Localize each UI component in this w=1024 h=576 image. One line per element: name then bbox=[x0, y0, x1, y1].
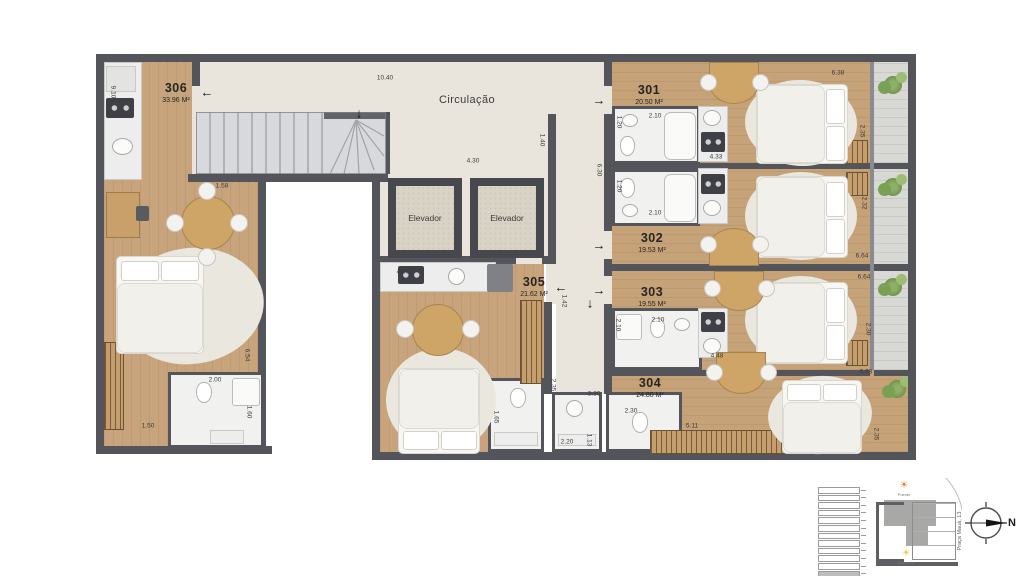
dimension-label: 6.64 bbox=[858, 274, 871, 281]
bed-304 bbox=[782, 380, 862, 454]
dimension-label: 4.28 bbox=[710, 177, 723, 184]
dimension-label: 1.20 bbox=[616, 180, 623, 193]
dimension-label: 2.30 bbox=[865, 323, 872, 336]
section-floor-row bbox=[818, 571, 860, 576]
section-floor-row bbox=[818, 510, 860, 517]
sunset-sun-icon: ☀ bbox=[900, 481, 909, 491]
dimension-label: 6.54 bbox=[244, 349, 251, 362]
elevator-cab-1: Elevador bbox=[396, 186, 454, 250]
dining-table-303 bbox=[714, 271, 764, 311]
section-floor-row bbox=[818, 525, 860, 532]
toilet-304 bbox=[632, 412, 648, 433]
keyplan-rooms-grid bbox=[912, 502, 956, 560]
dimension-label: 4.48 bbox=[711, 353, 724, 360]
dimension-label: 9.10 bbox=[110, 86, 117, 99]
pillow bbox=[403, 431, 439, 450]
direction-arrow: ↓ bbox=[587, 296, 594, 311]
wardrobe-305 bbox=[520, 300, 542, 384]
duvet bbox=[783, 402, 861, 453]
wall-right bbox=[908, 54, 916, 460]
chair bbox=[700, 74, 717, 91]
section-floor-row bbox=[818, 555, 860, 562]
cooktop-306 bbox=[106, 98, 134, 118]
balcony-divider-3 bbox=[874, 370, 908, 376]
pillow bbox=[826, 325, 845, 360]
plant-icon bbox=[884, 278, 902, 296]
kitchen-sink-301 bbox=[703, 110, 721, 126]
wardrobe-303 bbox=[846, 340, 868, 366]
dimension-label: 3.30 bbox=[588, 391, 601, 398]
chair bbox=[700, 236, 717, 253]
dimension-label: 10.40 bbox=[377, 75, 393, 82]
keyplan-bottom-wall bbox=[876, 562, 958, 566]
pillow bbox=[826, 182, 845, 217]
toilet-306 bbox=[196, 382, 212, 403]
pillow bbox=[826, 219, 845, 254]
dimension-label: 1.42 bbox=[561, 295, 568, 308]
sink-counter-306 bbox=[210, 430, 244, 444]
north-label: N bbox=[1008, 517, 1016, 529]
dimension-label: 2.35 bbox=[550, 379, 557, 392]
dimension-label: 4.30 bbox=[467, 158, 480, 165]
dimension-label: 2.32 bbox=[861, 197, 868, 210]
chair bbox=[752, 236, 769, 253]
section-floor-row bbox=[818, 502, 860, 509]
chair bbox=[166, 214, 184, 232]
dimension-label: 2.10 bbox=[652, 317, 665, 324]
unit-area: 19.53 M² bbox=[638, 247, 666, 255]
dimension-label: 6.64 bbox=[856, 253, 869, 260]
chair bbox=[198, 182, 216, 200]
sink-301 bbox=[622, 114, 638, 127]
pillow bbox=[826, 89, 845, 124]
dimension-label: 6.30 bbox=[596, 164, 603, 177]
chair bbox=[760, 364, 777, 381]
wall-lobby-right bbox=[548, 114, 556, 264]
pillow bbox=[823, 384, 857, 401]
dimension-label: 4.33 bbox=[710, 154, 723, 161]
bathtub-301 bbox=[664, 112, 696, 160]
plant-icon bbox=[884, 178, 902, 196]
dimension-label: 2.10 bbox=[649, 210, 662, 217]
wall-stairs-bottom bbox=[188, 174, 388, 182]
bed-306 bbox=[116, 256, 204, 354]
unit-number: 301 bbox=[635, 84, 663, 98]
dimension-label: 1.65 bbox=[493, 411, 500, 424]
bed-305 bbox=[398, 368, 480, 454]
cooktop-301 bbox=[701, 132, 725, 152]
unit-area: 24.80 M² bbox=[636, 392, 664, 400]
chair bbox=[706, 364, 723, 381]
shower-306 bbox=[232, 378, 260, 406]
balcony-divider-2 bbox=[874, 264, 908, 271]
wardrobe-304 bbox=[650, 430, 790, 454]
unit-306-label: 30633.96 M² bbox=[162, 82, 190, 104]
sunrise-label: Nascente bbox=[898, 560, 915, 565]
pillow bbox=[441, 431, 477, 450]
direction-arrow: ← bbox=[555, 280, 568, 295]
section-floor-row bbox=[818, 533, 860, 540]
unit-area: 19.55 M² bbox=[638, 301, 666, 309]
plant-icon bbox=[884, 76, 902, 94]
desk-chair-306 bbox=[136, 206, 149, 221]
elevator-cab-2: Elevador bbox=[478, 186, 536, 250]
dimension-label: 1.58 bbox=[216, 183, 229, 190]
wall-305-left bbox=[372, 174, 380, 458]
bed-301 bbox=[756, 84, 848, 164]
staircase bbox=[196, 112, 386, 174]
section-floor-row bbox=[818, 548, 860, 555]
unit-302-label: 30219.53 M² bbox=[638, 232, 666, 254]
chair bbox=[396, 320, 414, 338]
direction-arrow: ↓ bbox=[356, 106, 363, 121]
duvet bbox=[757, 85, 825, 163]
plant-icon bbox=[888, 380, 906, 398]
desk-306 bbox=[106, 192, 140, 238]
dining-table-305 bbox=[412, 304, 464, 356]
duvet bbox=[117, 283, 203, 353]
kitchen-sink-306 bbox=[112, 138, 133, 155]
bathtub-302 bbox=[664, 174, 696, 222]
section-floor-row bbox=[818, 517, 860, 524]
washer-305b bbox=[566, 400, 583, 417]
dimension-label: 2.35 bbox=[873, 428, 880, 441]
unit-area: 20.50 M² bbox=[635, 99, 663, 107]
fridge-305 bbox=[487, 264, 513, 292]
wall-left bbox=[96, 54, 104, 454]
dimension-label: 2.30 bbox=[625, 408, 638, 415]
unit-number: 303 bbox=[638, 286, 666, 300]
elevator-1-label: Elevador bbox=[396, 213, 454, 223]
elevator-shaft-1: Elevador bbox=[388, 178, 462, 258]
sink-counter-305 bbox=[494, 432, 538, 446]
pillow bbox=[826, 126, 845, 161]
unit-area: 33.96 M² bbox=[162, 97, 190, 105]
pillow bbox=[121, 261, 159, 281]
direction-arrow: → bbox=[593, 238, 606, 253]
sunrise-sun-icon: ☀ bbox=[902, 549, 911, 559]
balcony-divider-1 bbox=[874, 163, 908, 169]
direction-arrow: ← bbox=[201, 85, 214, 100]
dimension-label: 1.13 bbox=[586, 434, 593, 447]
section-floor-row bbox=[818, 495, 860, 502]
key-plan: ☀ Poente ☀ Nascente bbox=[866, 478, 962, 576]
dimension-label: 6.38 bbox=[832, 70, 845, 77]
direction-arrow: → bbox=[593, 93, 606, 108]
wall-top bbox=[96, 54, 916, 62]
dimension-label: 1.20 bbox=[616, 116, 623, 129]
section-floor-row bbox=[818, 540, 860, 547]
circulation-label: Circulação bbox=[439, 94, 495, 106]
pillow bbox=[161, 261, 199, 281]
toilet-305 bbox=[510, 388, 526, 408]
chair bbox=[752, 74, 769, 91]
sunset-label: Poente bbox=[898, 492, 911, 497]
unit-number: 306 bbox=[162, 82, 190, 96]
dimension-label: 1.40 bbox=[539, 134, 546, 147]
bed-302 bbox=[756, 176, 848, 258]
unit-304-label: 30424.80 M² bbox=[636, 377, 664, 399]
balcony-strip bbox=[874, 62, 908, 370]
floor-plan-canvas: Elevador Elevador bbox=[0, 0, 1024, 576]
dimension-label: 1.50 bbox=[142, 423, 155, 430]
wardrobe-302 bbox=[846, 172, 868, 196]
keyplan-outline bbox=[876, 502, 904, 562]
chair bbox=[198, 248, 216, 266]
kitchen-sink-302 bbox=[703, 200, 721, 216]
dimension-label: 2.20 bbox=[561, 439, 574, 446]
unit-305-label: 30521.62 M² bbox=[520, 276, 548, 298]
unit-area: 21.62 M² bbox=[520, 291, 548, 299]
dimension-label: 6.93 bbox=[860, 369, 873, 376]
dimension-label: 2.10 bbox=[615, 319, 622, 332]
dimension-label: 2.00 bbox=[209, 377, 222, 384]
unit-number: 305 bbox=[520, 276, 548, 290]
wall-306-door-stub bbox=[192, 62, 200, 86]
dimension-label: 5.11 bbox=[686, 423, 698, 430]
section-floor-row bbox=[818, 487, 860, 494]
wardrobe-306 bbox=[104, 342, 124, 430]
dimension-label: 4.00 bbox=[397, 269, 410, 276]
pillow bbox=[826, 288, 845, 323]
section-floor-row bbox=[818, 563, 860, 570]
unit-number: 304 bbox=[636, 377, 664, 391]
unit-301-label: 30120.50 M² bbox=[635, 84, 663, 106]
pillow bbox=[787, 384, 821, 401]
kitchen-sink-305 bbox=[448, 268, 465, 285]
duvet bbox=[399, 369, 479, 429]
sink-302 bbox=[622, 204, 638, 217]
toilet-301 bbox=[620, 136, 635, 156]
dimension-label: 2.35 bbox=[859, 125, 866, 138]
dining-table-306 bbox=[181, 196, 235, 250]
unit-303-label: 30319.55 M² bbox=[638, 286, 666, 308]
dimension-label: 2.10 bbox=[649, 113, 662, 120]
chair bbox=[462, 320, 480, 338]
chair bbox=[230, 214, 248, 232]
chair bbox=[704, 280, 721, 297]
elevator-2-label: Elevador bbox=[478, 213, 536, 223]
direction-arrow: → bbox=[593, 283, 606, 298]
chair bbox=[758, 280, 775, 297]
unit-number: 302 bbox=[638, 232, 666, 246]
sink-303 bbox=[674, 318, 690, 331]
cooktop-303 bbox=[701, 312, 725, 332]
dimension-label: 1.60 bbox=[246, 406, 253, 419]
elevator-shaft-2: Elevador bbox=[470, 178, 544, 258]
